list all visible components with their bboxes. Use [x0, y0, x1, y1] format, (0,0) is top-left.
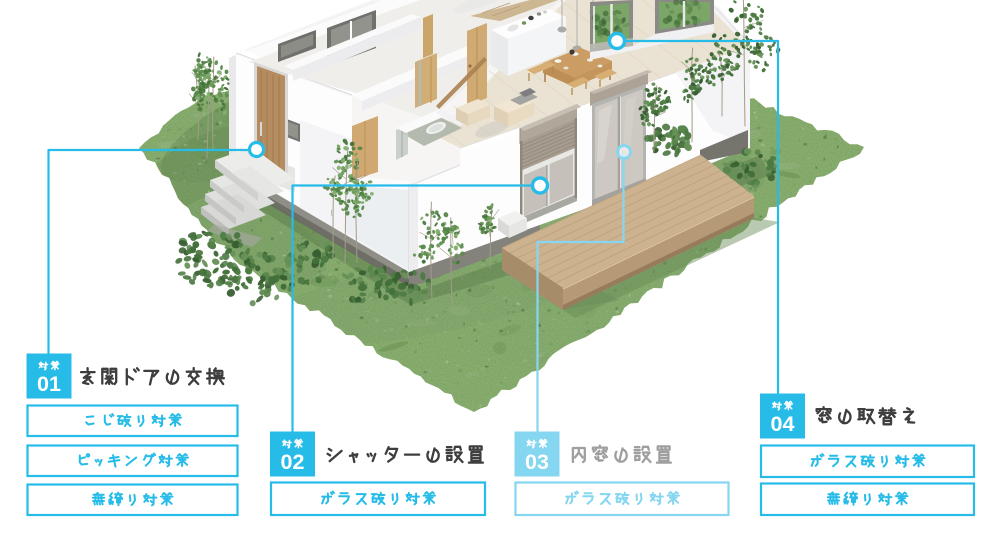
svg-text:01: 01	[37, 372, 61, 396]
svg-text:03: 03	[525, 450, 549, 474]
svg-text:04: 04	[771, 412, 795, 436]
svg-text:02: 02	[281, 450, 305, 474]
